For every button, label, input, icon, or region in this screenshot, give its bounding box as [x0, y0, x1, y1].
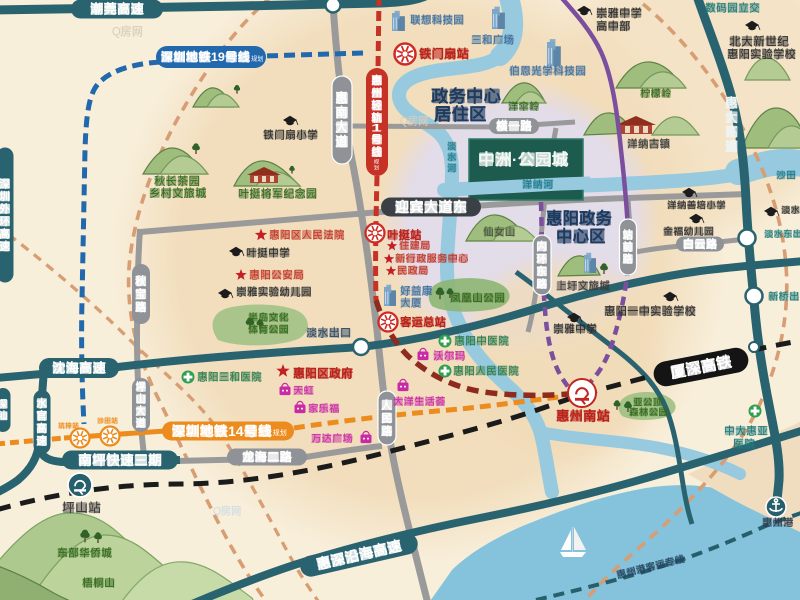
- svg-text:水: 水: [447, 151, 457, 163]
- svg-text:沙田站: 沙田站: [97, 416, 118, 425]
- svg-text:仙女山: 仙女山: [483, 225, 515, 238]
- svg-text:天虹: 天虹: [293, 385, 314, 397]
- svg-text:淡水小学: 淡水小学: [781, 204, 800, 215]
- svg-text:号: 号: [371, 133, 382, 146]
- svg-text:惠阳政务: 惠阳政务: [546, 209, 613, 228]
- svg-text:东部华侨城: 东部华侨城: [57, 546, 112, 560]
- svg-text:迎宾大道东: 迎宾大道东: [395, 199, 468, 216]
- svg-text:秋: 秋: [135, 274, 146, 288]
- svg-text:规划: 规划: [273, 428, 287, 437]
- svg-text:叶挺站: 叶挺站: [387, 228, 422, 242]
- svg-text:惠阳区人民法院: 惠阳区人民法院: [269, 228, 345, 241]
- svg-text:规: 规: [374, 158, 380, 166]
- svg-text:1: 1: [371, 122, 382, 134]
- svg-text:家乐福: 家乐福: [308, 402, 340, 415]
- svg-text:洋纳河: 洋纳河: [522, 178, 554, 191]
- svg-text:崇雅实验幼儿园: 崇雅实验幼儿园: [236, 285, 312, 298]
- svg-text:中大惠亚: 中大惠亚: [724, 424, 768, 438]
- svg-text:新桥出口: 新桥出口: [768, 290, 800, 303]
- svg-text:龙海二路: 龙海二路: [241, 449, 293, 464]
- svg-text:深圳地铁14号线: 深圳地铁14号线: [172, 423, 273, 439]
- svg-text:南: 南: [335, 105, 347, 120]
- svg-text:深: 深: [0, 398, 7, 411]
- svg-text:数码园立交: 数码园立交: [705, 1, 760, 15]
- svg-text:深: 深: [0, 176, 10, 190]
- svg-text:速: 速: [0, 239, 10, 253]
- svg-text:河: 河: [447, 162, 457, 174]
- svg-text:官: 官: [36, 408, 47, 422]
- svg-text:道: 道: [136, 417, 146, 430]
- svg-text:淡: 淡: [447, 140, 457, 152]
- svg-text:南坪快速三期: 南坪快速三期: [78, 452, 162, 468]
- svg-text:潮莞高速: 潮莞高速: [90, 1, 145, 17]
- svg-text:惠州南站: 惠州南站: [556, 408, 610, 424]
- svg-text:客运总站: 客运总站: [399, 315, 447, 329]
- svg-text:惠州港: 惠州港: [762, 516, 794, 529]
- svg-text:州: 州: [370, 87, 382, 100]
- svg-text:宝: 宝: [135, 287, 146, 301]
- svg-text:深圳地铁19号线: 深圳地铁19号线: [161, 49, 251, 64]
- svg-text:惠阳区政府: 惠阳区政府: [293, 366, 353, 380]
- svg-text:山: 山: [136, 393, 146, 406]
- svg-text:铁门扇站: 铁门扇站: [419, 46, 469, 61]
- svg-text:外: 外: [0, 201, 10, 215]
- svg-text:高: 高: [725, 123, 738, 139]
- svg-text:轻: 轻: [371, 98, 382, 112]
- svg-text:线: 线: [371, 145, 382, 159]
- svg-text:体育公园: 体育公园: [248, 323, 289, 336]
- svg-text:Q房网: Q房网: [400, 115, 428, 128]
- svg-text:新行政服务中心: 新行政服务中心: [395, 252, 469, 265]
- svg-text:民: 民: [381, 412, 392, 425]
- svg-text:大厦: 大厦: [400, 296, 422, 309]
- svg-text:洋伞岭: 洋伞岭: [508, 100, 540, 113]
- svg-text:惠阳人民医院: 惠阳人民医院: [453, 364, 519, 378]
- svg-text:高: 高: [0, 226, 10, 240]
- svg-text:中心区: 中心区: [556, 227, 606, 246]
- svg-text:秋长茶园: 秋长茶园: [154, 174, 200, 188]
- svg-text:叶挺中学: 叶挺中学: [246, 246, 290, 260]
- svg-text:森林公园: 森林公园: [629, 406, 668, 418]
- svg-text:惠: 惠: [335, 91, 347, 106]
- svg-text:好益康: 好益康: [400, 284, 433, 297]
- svg-text:路: 路: [135, 300, 146, 314]
- svg-text:路: 路: [623, 253, 633, 266]
- svg-text:惠阳三和医院: 惠阳三和医院: [197, 370, 262, 383]
- svg-text:洋纳古镇: 洋纳古镇: [627, 137, 671, 150]
- svg-text:环: 环: [536, 252, 547, 265]
- svg-text:惠阳公安局: 惠阳公安局: [249, 268, 304, 282]
- svg-text:速: 速: [36, 433, 47, 447]
- svg-text:金福幼儿园: 金福幼儿园: [663, 225, 714, 238]
- svg-text:Q房网: Q房网: [213, 505, 241, 518]
- svg-text:惠: 惠: [371, 73, 382, 87]
- svg-text:惠: 惠: [725, 94, 738, 110]
- svg-text:汕: 汕: [0, 409, 7, 422]
- svg-text:大: 大: [335, 120, 347, 135]
- svg-text:叶挺将军纪念园: 叶挺将军纪念园: [238, 187, 317, 201]
- svg-text:淡水东出口: 淡水东出口: [764, 228, 800, 239]
- svg-text:医院: 医院: [733, 437, 755, 451]
- svg-text:高中部: 高中部: [596, 19, 631, 33]
- svg-text:规划: 规划: [251, 55, 263, 63]
- svg-text:内: 内: [536, 239, 547, 253]
- svg-text:坪山站: 坪山站: [62, 501, 101, 515]
- svg-text:Q房网: Q房网: [112, 24, 143, 38]
- svg-text:大: 大: [136, 405, 146, 418]
- svg-text:划: 划: [374, 163, 379, 171]
- svg-text:坪: 坪: [136, 381, 146, 394]
- svg-text:北大新世纪: 北大新世纪: [729, 34, 789, 48]
- svg-text:路: 路: [536, 276, 548, 290]
- svg-text:圳: 圳: [0, 189, 10, 203]
- svg-text:环: 环: [0, 215, 10, 228]
- svg-text:人: 人: [381, 398, 392, 412]
- svg-text:中洲·公园城: 中洲·公园城: [478, 150, 569, 169]
- svg-text:大洋生活荟: 大洋生活荟: [393, 395, 446, 408]
- svg-text:柠檬岭: 柠檬岭: [640, 87, 672, 100]
- svg-text:崇雅中学: 崇雅中学: [596, 6, 642, 20]
- svg-text:乡村文旅城: 乡村文旅城: [149, 186, 207, 200]
- svg-text:崇雅中学: 崇雅中学: [553, 322, 597, 336]
- svg-text:居住区: 居住区: [434, 104, 487, 124]
- svg-text:高: 高: [36, 421, 47, 435]
- svg-text:横一路: 横一路: [496, 119, 532, 133]
- svg-text:沃尔玛: 沃尔玛: [433, 349, 465, 362]
- svg-text:半岛文化: 半岛文化: [248, 311, 289, 324]
- svg-text:路: 路: [381, 424, 392, 438]
- svg-text:坑梓站: 坑梓站: [58, 421, 79, 430]
- svg-text:伯恩光学科技园: 伯恩光学科技园: [509, 64, 586, 78]
- svg-text:三和广场: 三和广场: [471, 33, 514, 46]
- svg-text:道: 道: [335, 134, 347, 149]
- svg-text:沈海高速: 沈海高速: [52, 360, 107, 376]
- svg-text:东: 东: [536, 264, 547, 278]
- svg-text:万达广场: 万达广场: [311, 432, 353, 445]
- svg-text:住建局: 住建局: [399, 239, 431, 252]
- svg-text:联想科技园: 联想科技园: [410, 13, 464, 26]
- svg-text:铁门扇小学: 铁门扇小学: [263, 128, 318, 142]
- svg-text:大: 大: [725, 109, 738, 125]
- svg-text:淡水出口: 淡水出口: [306, 326, 351, 340]
- svg-text:白云路: 白云路: [683, 237, 718, 251]
- svg-text:站: 站: [623, 229, 633, 242]
- svg-text:水: 水: [36, 396, 48, 410]
- svg-text:上圩文旅城: 上圩文旅城: [556, 279, 610, 292]
- svg-text:沙田: 沙田: [776, 171, 796, 182]
- svg-text:前: 前: [623, 241, 633, 254]
- svg-text:洋纳善培小学: 洋纳善培小学: [667, 199, 726, 211]
- svg-text:惠阳实验学校: 惠阳实验学校: [727, 47, 796, 61]
- svg-text:惠阳一中实验学校: 惠阳一中实验学校: [604, 304, 696, 318]
- svg-text:惠阳中医院: 惠阳中医院: [454, 334, 509, 348]
- svg-text:速: 速: [725, 138, 738, 154]
- svg-text:梧桐山: 梧桐山: [82, 576, 115, 590]
- svg-text:民政局: 民政局: [397, 264, 429, 277]
- svg-text:政务中心: 政务中心: [431, 86, 501, 106]
- svg-text:凤凰山公园: 凤凰山公园: [450, 292, 505, 305]
